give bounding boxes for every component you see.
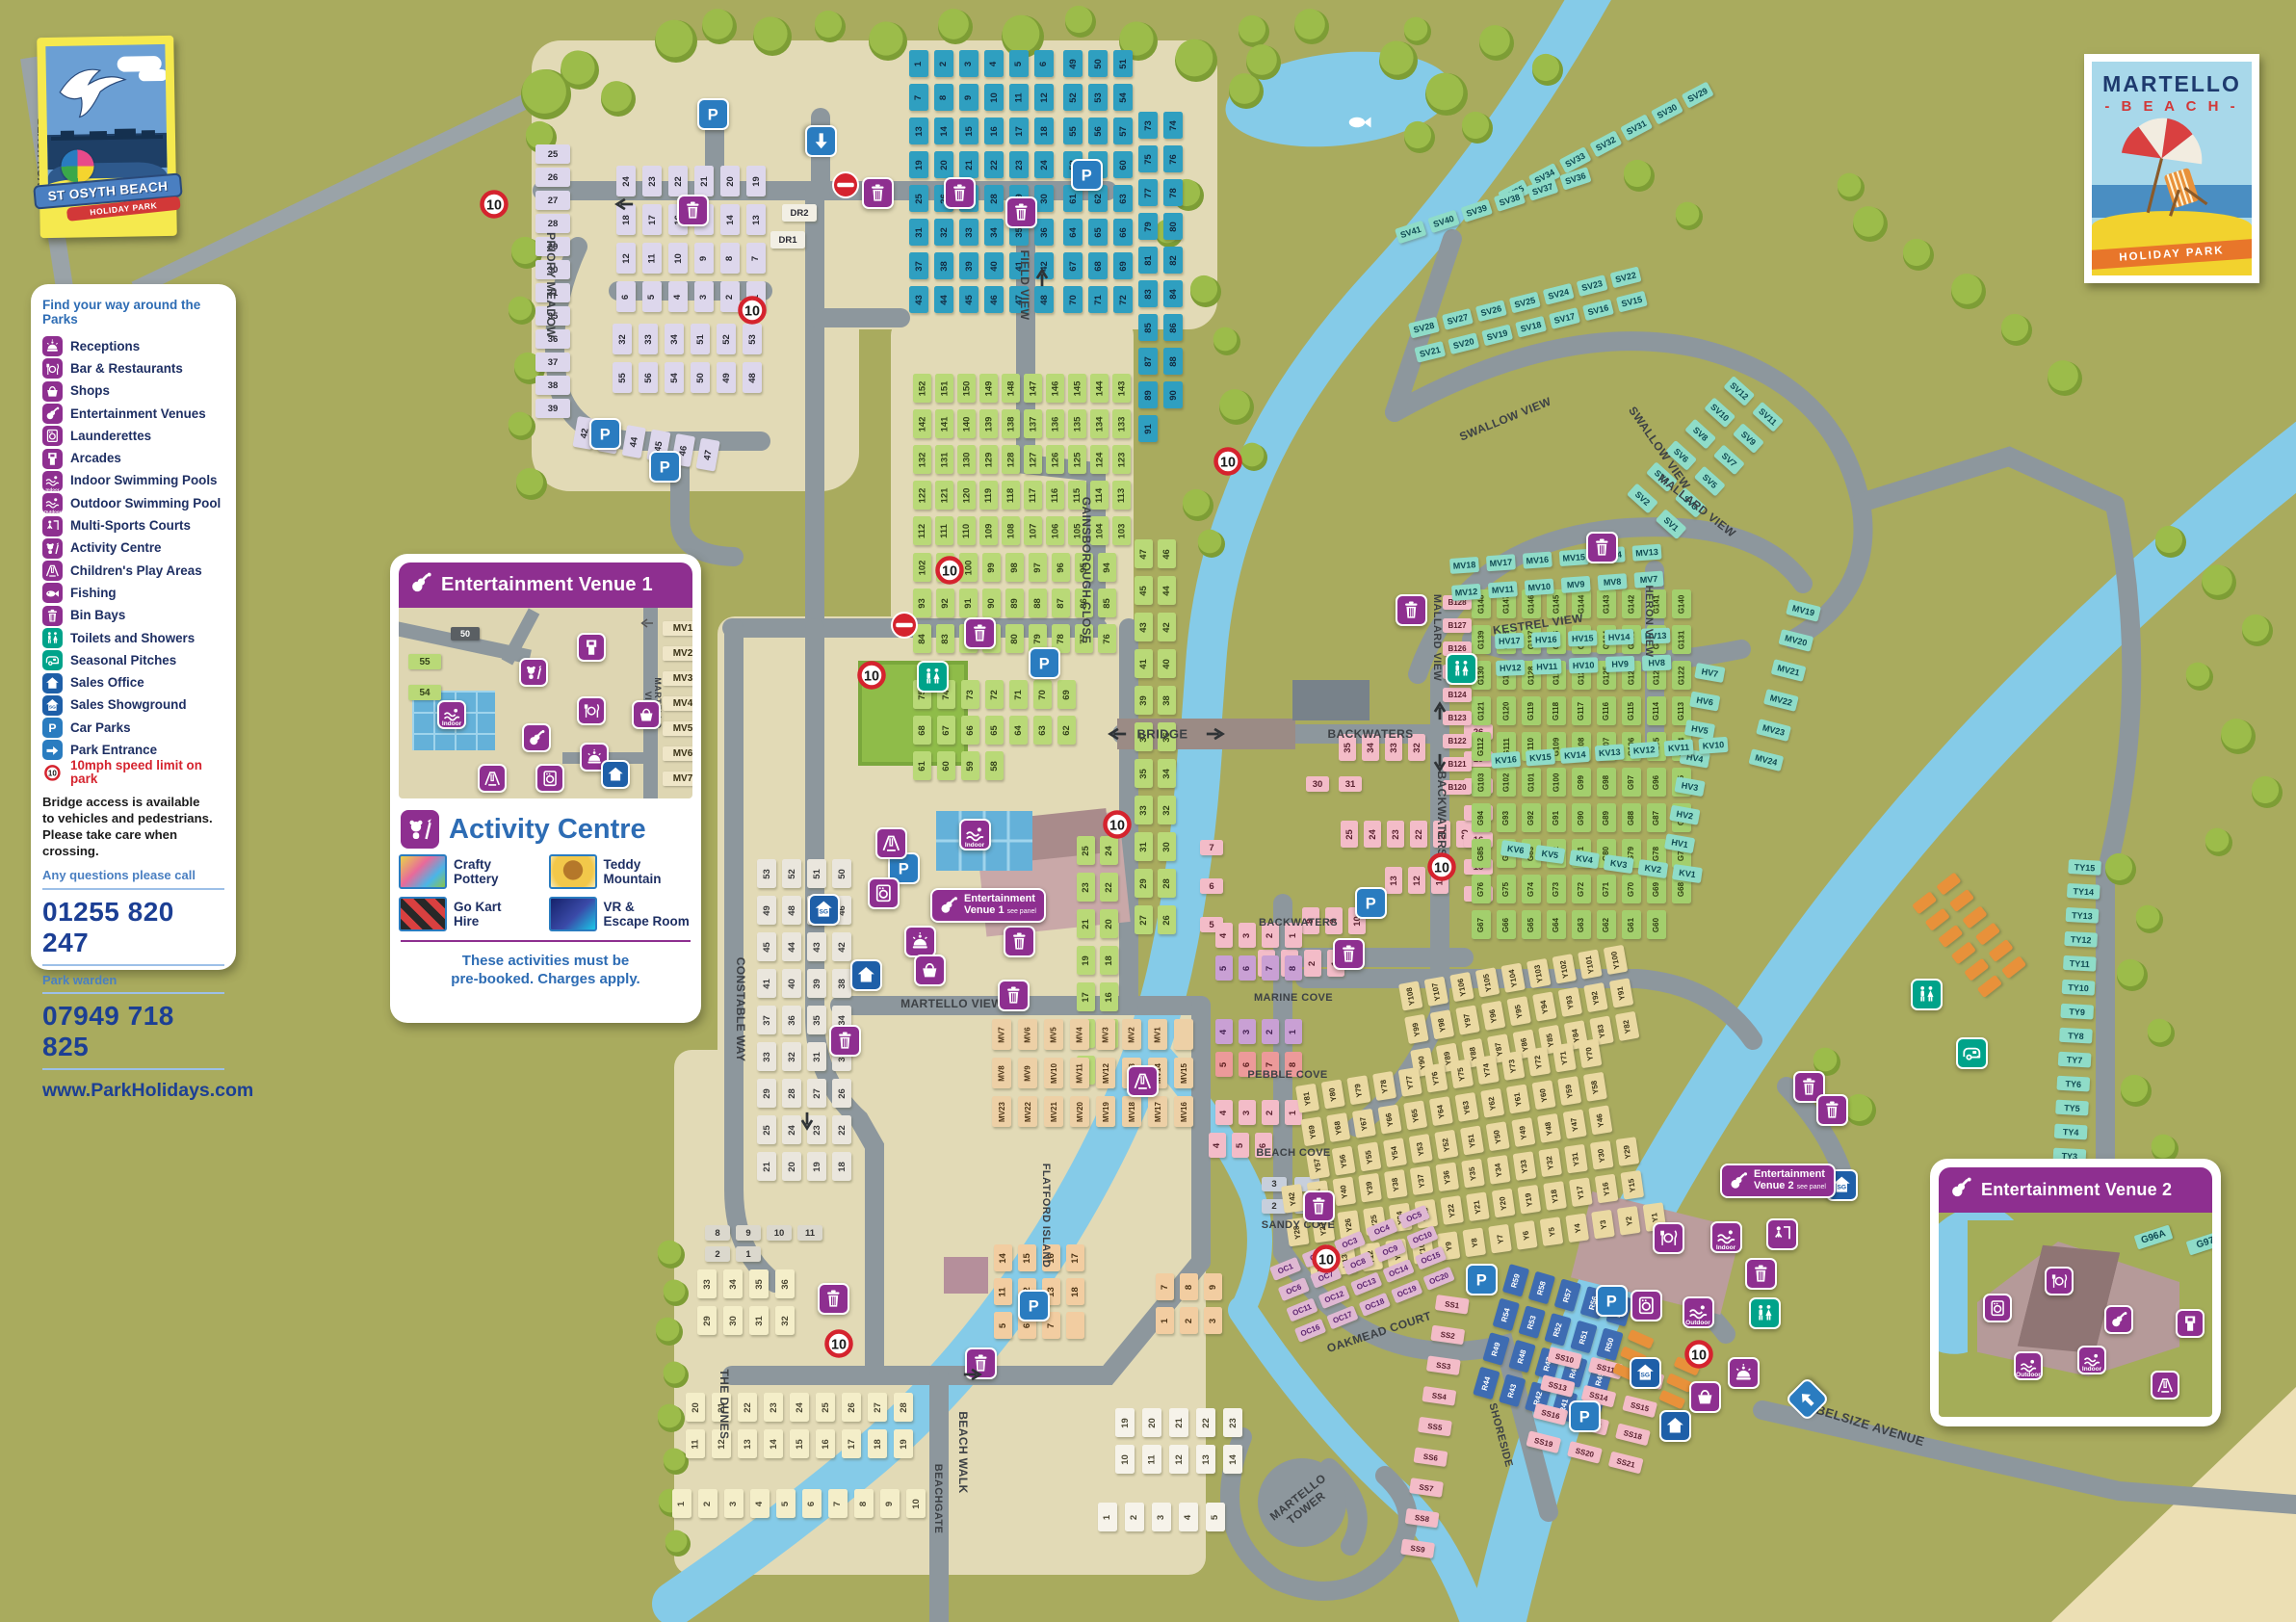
pitch-cluster: 1521511501491481471461451441431421411401… (913, 374, 1131, 545)
legend-item-label: Receptions (70, 340, 140, 353)
pitch: SS18 (1615, 1424, 1651, 1447)
legend-item-label: Fishing (70, 587, 117, 600)
pitch: 4 (668, 281, 688, 312)
pitch: 39 (959, 252, 978, 279)
pitch: 61 (913, 751, 931, 780)
pitch: 78 (1163, 179, 1183, 206)
pitch: G75 (1497, 875, 1516, 903)
svg-text:SG: SG (1837, 1184, 1846, 1190)
pitch: G116 (1597, 696, 1616, 725)
phone-warden: 07949 718 825 (42, 994, 224, 1070)
pitch: 20 (934, 151, 953, 178)
pitch: 12 (616, 243, 636, 274)
pitch: B122 (1443, 734, 1472, 748)
pitch: Y77 (1398, 1067, 1422, 1097)
svg-text:P: P (1038, 655, 1049, 672)
entrance-icon (42, 740, 63, 760)
arrow-icon (1429, 700, 1450, 721)
legend-item-label: Shops (70, 384, 110, 398)
bin-icon (1333, 938, 1365, 970)
pitch: SV10 (1704, 397, 1735, 428)
pitch: Y73 (1500, 1051, 1525, 1081)
pitch: MV12 (1451, 584, 1481, 601)
pitch (1938, 925, 1963, 948)
svg-text:10: 10 (864, 669, 879, 685)
sg-icon: SG (1630, 1357, 1661, 1389)
pitch: 149 (979, 374, 998, 403)
pitch: G70 (1622, 875, 1641, 903)
carpark-icon: P (1596, 1285, 1628, 1317)
pitch (1925, 908, 1950, 931)
carpark-icon: P (1018, 1290, 1050, 1321)
pitch: 34 (1158, 759, 1176, 788)
legend-item-label: Toilets and Showers (70, 632, 195, 645)
pitch: 5 (642, 281, 662, 312)
pitch: 13 (1196, 1445, 1215, 1474)
pitch: G99 (1572, 768, 1591, 797)
pitch: 7 (1262, 955, 1279, 981)
pitch: 109 (979, 516, 998, 545)
venue2-minimap: OutdoorIndoorG96AG97 (1939, 1213, 2212, 1417)
pitch: 30 (723, 1306, 743, 1335)
pitch: G72 (1572, 875, 1591, 903)
pitch: 3 (1239, 923, 1256, 948)
pitch: R48 (1508, 1340, 1535, 1373)
pitch: 86 (1163, 314, 1183, 341)
pitch: 40 (1158, 649, 1176, 678)
tern-bird-icon (49, 52, 146, 125)
pitch: 35 (1135, 759, 1153, 788)
pitch: Y47 (1563, 1110, 1587, 1139)
pitch: TY13 (2066, 907, 2100, 924)
speed10-icon: 10 (1103, 810, 1132, 839)
pitch: 22 (1410, 821, 1427, 848)
pitch: SS5 (1418, 1417, 1452, 1437)
pitch: 43 (909, 286, 928, 313)
pitch: 87 (1052, 589, 1070, 617)
pitch: 17 (642, 204, 662, 235)
legend-item-label: Indoor Swimming Pools (70, 474, 218, 487)
pitch: Y22 (1440, 1195, 1464, 1225)
pitch: Y99 (1404, 1014, 1429, 1044)
pitch: 28 (894, 1393, 913, 1422)
toilets-icon (1749, 1297, 1781, 1329)
shop-icon (914, 955, 946, 986)
street-label: MARINE COVE (1254, 992, 1333, 1004)
pitch: MV16 (1174, 1096, 1193, 1127)
activity-item: Teddy Mountain (549, 854, 693, 889)
pitch: G114 (1647, 696, 1666, 725)
pitch: 151 (935, 374, 953, 403)
bin-icon (964, 617, 996, 649)
bin-icon (1396, 594, 1427, 626)
pitch: 117 (1024, 481, 1042, 510)
pitch: 19 (894, 1429, 913, 1458)
pitch: TY7 (2058, 1052, 2092, 1068)
pitch: MV7 (992, 1019, 1011, 1050)
pitch (1951, 941, 1976, 964)
toilets-icon (1911, 979, 1943, 1010)
pitch: 1 (672, 1489, 691, 1518)
svg-text:10: 10 (831, 1338, 847, 1353)
pitch: 31 (1339, 776, 1362, 792)
legend-item-children-s-play-areas: Children's Play Areas (42, 560, 224, 582)
legend-item-label: Entertainment Venues (70, 407, 206, 421)
pitch: MV10 (1525, 579, 1554, 596)
pitch: 118 (1002, 481, 1020, 510)
legend-item-label: Car Parks (70, 721, 131, 735)
pitch: R58 (1528, 1271, 1555, 1305)
legend-title: Find your way around the Parks (42, 298, 224, 327)
pier-icon (47, 127, 167, 143)
pitch: 9 (694, 243, 714, 274)
pitch: 12 (1169, 1445, 1188, 1474)
speed10-icon: 10 (42, 763, 63, 783)
pitch: Y31 (1564, 1144, 1588, 1174)
play-icon (875, 827, 907, 859)
legend-item-label: Activity Centre (70, 541, 162, 555)
reception-icon (904, 926, 936, 957)
pitch: 56 (639, 362, 658, 393)
pitch: 25 (909, 185, 928, 212)
pitch: B127 (1443, 618, 1472, 633)
pitch: Y46 (1588, 1105, 1612, 1135)
svg-text:P: P (48, 721, 56, 735)
pitch: 135 (1068, 409, 1086, 438)
pitch: 120 (957, 481, 976, 510)
prebook-note: These activities must be pre-booked. Cha… (399, 952, 692, 988)
carpark-icon: P (1569, 1400, 1601, 1432)
carpark-icon: P (1466, 1264, 1498, 1295)
pitch: 50 (451, 627, 480, 641)
pitch: 57 (1113, 118, 1133, 144)
pitch: G120 (1497, 696, 1516, 725)
pitch: Y65 (1403, 1100, 1427, 1130)
pitch: 129 (979, 445, 998, 474)
pitch: 10 (906, 1489, 926, 1518)
pitch: HV5 (1684, 719, 1715, 740)
pitch: 58 (985, 751, 1004, 780)
pitch: 7 (746, 243, 766, 274)
toilets-icon (42, 628, 63, 648)
play-icon (42, 561, 63, 581)
legend-item-sales-office: Sales Office (42, 671, 224, 693)
pitch: 9 (880, 1489, 900, 1518)
pitch: Y40 (1332, 1177, 1356, 1207)
pitch: 50 (691, 362, 710, 393)
pitch: Y6 (1514, 1220, 1538, 1250)
pitch: Y20 (1492, 1189, 1516, 1218)
pitch: Y37 (1410, 1165, 1434, 1195)
pitch: 72 (1113, 286, 1133, 313)
pitch: 26 (1158, 905, 1176, 934)
pitch: 2 (1180, 1307, 1198, 1334)
legend-item-label: Sales Showground (70, 698, 187, 712)
activity-name: Go Kart Hire (454, 900, 502, 929)
pitch: 133 (1112, 409, 1131, 438)
pitch: Y59 (1557, 1076, 1581, 1106)
pitch: G103 (1472, 768, 1491, 797)
pitch: 28 (984, 185, 1004, 212)
pitch: G76 (1472, 875, 1491, 903)
activity-centre-title: Activity Centre (449, 814, 646, 846)
pitch: 36 (1034, 219, 1054, 246)
pitch: 55 (1063, 118, 1083, 144)
pitch: 20 (720, 166, 740, 196)
pitch: 24 (1034, 151, 1054, 178)
svg-text:10: 10 (48, 769, 57, 777)
bin-icon (818, 1283, 849, 1315)
pitch: 144 (1090, 374, 1109, 403)
legend-item-receptions: Receptions (42, 335, 224, 357)
pitch: 55 (613, 362, 632, 393)
pitch: G71 (1597, 875, 1616, 903)
pitch: 43 (1135, 613, 1153, 641)
pitch: G92 (1522, 803, 1541, 832)
pitch: Y42 (1281, 1184, 1305, 1214)
pitch: 34 (665, 324, 684, 354)
pitch: 75 (1138, 145, 1158, 172)
reception-icon (42, 336, 63, 356)
pitch: HV6 (1689, 692, 1720, 712)
legend-item-indoor-swimming-pools: IndoorIndoor Swimming Pools (42, 470, 224, 492)
pitch: 91 (1138, 415, 1158, 442)
bin-icon (677, 195, 709, 226)
pitch: 4 (1179, 1503, 1198, 1531)
pitch: 54 (408, 685, 441, 700)
caravan-icon (42, 650, 63, 670)
pool-icon: Indoor (437, 700, 466, 729)
pitch: 17 (1077, 982, 1095, 1011)
street-label: THE DUNES (717, 1370, 731, 1440)
pitch: MV23 (992, 1096, 1011, 1127)
pitch: 18 (1100, 946, 1118, 975)
svg-text:10: 10 (744, 304, 760, 320)
pitch: 124 (1090, 445, 1109, 474)
pitch: 17 (1066, 1244, 1084, 1271)
house-icon (42, 673, 63, 693)
pitch: HV3 (1674, 776, 1705, 797)
pitch: 24 (1100, 836, 1118, 865)
pitch: SS6 (1414, 1447, 1448, 1467)
pitch: G100 (1547, 768, 1566, 797)
pitch: 2 (705, 1246, 730, 1262)
pitch: MV3 (1096, 1019, 1115, 1050)
pitch: 91 (959, 589, 978, 617)
house-icon (850, 959, 882, 991)
pitch: 42 (832, 932, 851, 961)
pitch: 39 (1135, 686, 1153, 715)
pitch: 19 (807, 1152, 826, 1181)
pitch: 49 (757, 896, 776, 925)
pitch: 35 (807, 1006, 826, 1034)
pitch: 54 (1113, 84, 1133, 111)
legend-item-label: Sales Office (70, 676, 144, 690)
pitch: 10 (1115, 1445, 1135, 1474)
pitch: 11 (1009, 84, 1029, 111)
pitch: Y81 (1295, 1084, 1319, 1113)
pitch: 14 (764, 1429, 783, 1458)
pitch: MV15 (1174, 1058, 1193, 1088)
legend-item-shops: Shops (42, 380, 224, 403)
caravan-icon (1956, 1037, 1988, 1069)
street-label: MALLARD VIEW (1431, 594, 1443, 681)
pitch: 70 (1033, 680, 1052, 709)
street-label: BACKWATERS (1327, 727, 1413, 741)
pitch: 23 (764, 1393, 783, 1422)
pitch: Y103 (1526, 958, 1552, 988)
pitch: DR2 (782, 204, 817, 222)
pitch: R51 (1570, 1321, 1597, 1354)
pitch: 19 (746, 166, 766, 196)
pitch: SS13 (1540, 1374, 1576, 1398)
pitch: Y7 (1488, 1224, 1512, 1254)
bridge-note: Bridge access is available to vehicles a… (42, 794, 224, 859)
pitch: 65 (985, 716, 1004, 745)
pitch: 33 (697, 1269, 717, 1298)
pitch: 4 (1215, 1100, 1233, 1125)
pitch: MV13 (1632, 544, 1662, 562)
pitch: 80 (1005, 624, 1024, 653)
pitch: 39 (807, 969, 826, 998)
pitch: 22 (1100, 873, 1118, 902)
phone-main: 01255 820 247 (42, 890, 224, 966)
pitch: 41 (757, 969, 776, 998)
svg-text:10: 10 (1109, 819, 1125, 834)
pitch: MV4 (1070, 1019, 1089, 1050)
legend-item-activity-centre: Activity Centre (42, 537, 224, 560)
pitch: 113 (1112, 481, 1131, 510)
pitch: 14 (1223, 1445, 1242, 1474)
pitch: 141 (935, 409, 953, 438)
pitch: 8 (1180, 1273, 1198, 1300)
pitch: 106 (1046, 516, 1064, 545)
pitch: Y56 (1332, 1146, 1356, 1176)
pitch: 87 (1138, 348, 1158, 375)
venue1-panel: Entertainment Venue 1 Indoor555450MV1MV2… (390, 554, 701, 1023)
pitch: 25 (816, 1393, 835, 1422)
pitch: Y38 (1384, 1169, 1408, 1199)
pitch: 37 (757, 1006, 776, 1034)
guitar-icon (2104, 1305, 2133, 1334)
guitar-icon (522, 723, 551, 752)
speed10-icon: 10 (1427, 852, 1456, 881)
svg-text:P: P (1028, 1297, 1038, 1315)
pitch: Y94 (1532, 991, 1557, 1021)
arrow-icon (1429, 752, 1450, 773)
pitch: SS7 (1409, 1478, 1444, 1498)
pitch: 41 (1135, 649, 1153, 678)
pitch: 51 (807, 859, 826, 888)
pitch: 110 (957, 516, 976, 545)
pitch: DR1 (770, 231, 805, 249)
pitch: 32 (934, 219, 953, 246)
activity-name: Teddy Mountain (604, 857, 662, 886)
pitch: 116 (1046, 481, 1064, 510)
pitch-mv: MV2 (663, 646, 692, 661)
pitch: OC9 (1374, 1239, 1406, 1263)
pitch: 12 (1034, 84, 1054, 111)
pitch-mv: MV6 (663, 746, 692, 761)
pitch: 53 (757, 859, 776, 888)
pitch-mv: MV7 (663, 772, 692, 786)
pitch: TY12 (2064, 931, 2098, 948)
pitch: 89 (1005, 589, 1024, 617)
pitch: G96 (1647, 768, 1666, 797)
legend-item-sales-showground: SGSales Showground (42, 694, 224, 717)
legend-item-label: Outdoor Swimming Pool (70, 497, 221, 510)
activity-centre-icon (401, 810, 439, 849)
pitch: Y3 (1591, 1210, 1615, 1240)
pitch: 3 (959, 50, 978, 77)
pitch: 3 (694, 281, 714, 312)
pitch: Y78 (1372, 1071, 1396, 1101)
pitch: Y101 (1578, 950, 1603, 980)
pitch: Y60 (1531, 1080, 1555, 1110)
arrow-icon (962, 1364, 983, 1385)
pitch: 84 (1163, 280, 1183, 307)
pitch: 40 (984, 252, 1004, 279)
pitch-cluster: 19202122231011121314 (1115, 1408, 1242, 1474)
pitch: SS2 (1430, 1325, 1465, 1346)
pitch: 68 (913, 716, 931, 745)
pitch: Y61 (1506, 1084, 1530, 1113)
pitch: OC11 (1286, 1297, 1318, 1321)
pitch: 26 (832, 1079, 851, 1108)
pitch: 48 (743, 362, 762, 393)
pitch: 60 (1113, 151, 1133, 178)
pitch: 30 (1158, 832, 1176, 861)
toilets-icon (917, 661, 949, 693)
pitch: Y35 (1461, 1159, 1485, 1189)
activity-centre-heading: Activity Centre (401, 810, 691, 849)
pitch: Y106 (1449, 972, 1474, 1002)
pitch: 85 (1098, 589, 1116, 617)
pitch: Y33 (1513, 1151, 1537, 1181)
carpark-icon: P (1355, 887, 1387, 919)
sg-icon: SG (808, 894, 840, 926)
pitch: MV16 (1523, 552, 1552, 569)
pitch: G60 (1647, 910, 1666, 939)
legend-item-label: 10mph speed limit on park (70, 759, 224, 786)
pitch: G131 (1672, 625, 1691, 654)
pitch: Y17 (1569, 1177, 1593, 1207)
pitch: 52 (717, 324, 736, 354)
pitch: Y36 (1435, 1163, 1459, 1192)
legend-item-label: Bin Bays (70, 609, 125, 622)
carpark-icon: P (42, 718, 63, 738)
pitch: 37 (535, 353, 570, 372)
pitch: MV23 (1756, 719, 1791, 742)
pitch (1964, 958, 1989, 981)
pitch: 19 (1077, 946, 1095, 975)
street-label: BEACHGATE (932, 1464, 944, 1533)
arcade-icon (2176, 1309, 2205, 1338)
bin-icon (1303, 1190, 1335, 1222)
pitch: 24 (790, 1393, 809, 1422)
pitch: Y105 (1475, 967, 1500, 997)
pitch: 22 (832, 1115, 851, 1144)
pitch: 148 (1002, 374, 1020, 403)
pitch: 11 (642, 243, 662, 274)
pitch: 7 (1156, 1273, 1174, 1300)
pitch: 8 (720, 243, 740, 274)
pitch: 13 (738, 1429, 757, 1458)
pitch: 30 (1306, 776, 1329, 792)
legend-panel: Find your way around the Parks Reception… (31, 284, 236, 970)
pitch: 90 (1163, 381, 1183, 408)
arrow-icon (1031, 267, 1053, 288)
